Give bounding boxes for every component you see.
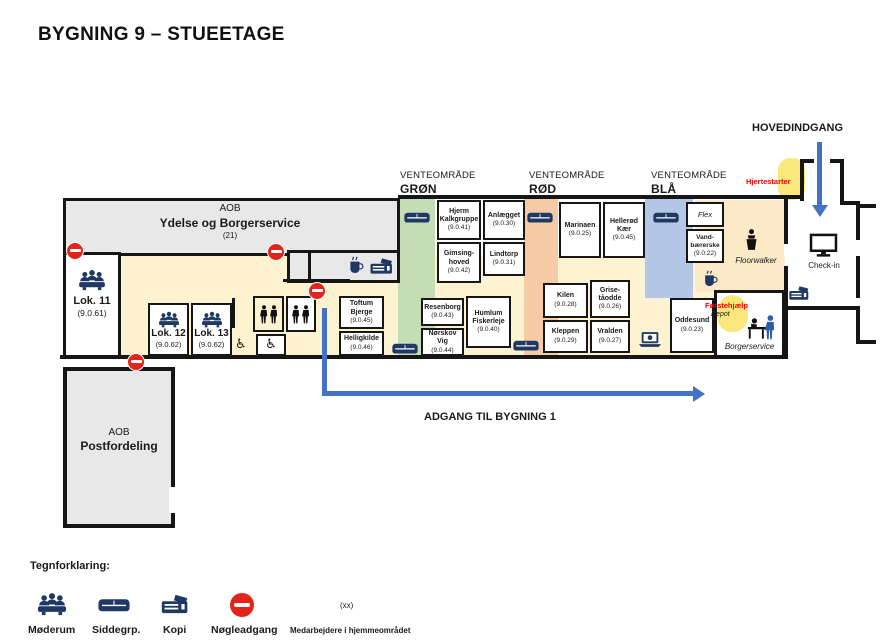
room-code: (9.0.45) xyxy=(613,234,635,242)
room-code: (9.0.29) xyxy=(554,337,576,345)
room-name: Lok. 12 xyxy=(151,328,185,340)
room-code: (9.0.61) xyxy=(77,308,106,318)
room-kilen: Kilen (9.0.28) xyxy=(543,283,588,318)
no-entry-icon xyxy=(229,592,255,618)
room-code: (9.0.41) xyxy=(448,224,470,232)
sofa-icon xyxy=(513,339,539,352)
room-code: (9.0.40) xyxy=(477,326,499,334)
wall-entrance-left-stub xyxy=(800,159,814,163)
aob-name: Ydelse og Borgerservice xyxy=(130,216,330,231)
room-name: Oddesund xyxy=(675,317,710,325)
room-gimsinghoved: Gimsing-hoved (9.0.42) xyxy=(437,242,481,283)
legend-item-kopi: Kopi xyxy=(163,624,186,636)
room-name: Lok. 11 xyxy=(73,295,110,308)
room-toftum-bjerge: Toftum Bjerge (9.0.45) xyxy=(339,296,384,329)
no-entry-icon xyxy=(308,282,326,300)
room-name: Kleppen xyxy=(552,328,580,336)
person-icon xyxy=(292,305,300,324)
wall-alcove-divider xyxy=(308,252,311,282)
room-code: (9.0.31) xyxy=(493,259,515,267)
room-noerskov-vig: Nørskov Vig (9.0.44) xyxy=(421,328,464,356)
legend-item-moederum: Møderum xyxy=(28,624,75,636)
room-name: Vand-bærerske xyxy=(689,234,721,250)
room-helleroed-kaer: Hellerød Kær (9.0.45) xyxy=(603,202,645,258)
meeting-icon xyxy=(200,311,224,328)
room-code: (9.0.43) xyxy=(431,312,453,320)
wall-right-bottom-stub xyxy=(856,340,876,344)
coffee-icon xyxy=(347,256,365,275)
waiting-area-green-label: VENTEOMRÅDE GRØN xyxy=(400,170,476,197)
room-lok-11: Lok. 11 (9.0.61) xyxy=(63,252,121,358)
room-name: Kilen xyxy=(557,292,574,300)
wheelchair-icon: ♿ xyxy=(235,337,247,352)
wc-persons-icon xyxy=(260,305,278,324)
person-icon xyxy=(302,305,310,324)
copier-icon xyxy=(369,256,395,276)
coffee-icon xyxy=(702,270,719,288)
room-hjerm-kalkgruppe: Hjerm Kalkgruppe (9.0.41) xyxy=(437,200,481,240)
defibrillator-label: Hjertestarter xyxy=(746,177,791,186)
depot-label: Depot xyxy=(711,311,730,318)
wall-checkin-bottom xyxy=(788,306,860,310)
sofa-icon xyxy=(98,597,130,613)
checkin-label: Check-in xyxy=(804,261,844,270)
wall-entrance-right-v xyxy=(840,159,844,201)
room-name: Anlægget xyxy=(488,212,520,220)
room-code: (9.0.62) xyxy=(156,340,182,349)
room-code: (9.0.23) xyxy=(681,326,703,334)
waiting-area-red-label: VENTEOMRÅDE RØD xyxy=(529,170,605,197)
legend-item-noegleadgang: Nøgleadgang xyxy=(211,624,278,636)
room-name: Helligkilde xyxy=(344,335,379,343)
floorwalker-lectern-icon xyxy=(744,228,759,251)
postfordeling-label: AOB Postfordeling xyxy=(68,426,170,455)
wall-entrance-right-stub xyxy=(830,159,844,163)
aob-org: AOB xyxy=(130,203,330,216)
wall-entrance-left-v xyxy=(800,159,804,201)
room-code: (9.0.27) xyxy=(599,337,621,345)
wall-right-c xyxy=(856,310,860,344)
wall-right-of-floorwalker-lower xyxy=(784,266,788,359)
room-name: Gimsing-hoved xyxy=(440,250,478,267)
no-entry-icon xyxy=(267,243,285,261)
checkin-monitor-icon xyxy=(809,233,838,257)
restroom-1 xyxy=(253,296,284,332)
room-code: (9.0.44) xyxy=(431,347,453,355)
aob-count: (21) xyxy=(130,231,330,241)
person-icon xyxy=(270,305,278,324)
laptop-icon xyxy=(638,331,662,348)
room-name: Toftum Bjerge xyxy=(342,300,381,317)
room-code: (9.0.25) xyxy=(569,230,591,238)
floorplan-canvas: BYGNING 9 – STUEETAGE AOB Ydelse og Borg… xyxy=(0,0,896,643)
room-anlaegget: Anlægget (9.0.30) xyxy=(483,200,525,240)
room-name: Grise-tåodde xyxy=(593,287,627,304)
room-name: Lok. 13 xyxy=(194,328,228,340)
postfordeling-door-gap xyxy=(169,487,177,513)
room-code: (9.0.62) xyxy=(199,340,225,349)
room-lok-12: Lok. 12 (9.0.62) xyxy=(148,303,189,356)
room-kleppen: Kleppen (9.0.29) xyxy=(543,320,588,353)
room-code: (9.0.28) xyxy=(554,301,576,309)
room-lindtorp: Lindtorp (9.0.31) xyxy=(483,242,525,276)
sofa-icon xyxy=(404,211,430,224)
post-org: AOB xyxy=(68,426,170,439)
person-icon xyxy=(260,305,268,324)
room-marinaen: Marinaen (9.0.25) xyxy=(559,202,601,258)
room-helligkilde: Helligkilde (9.0.46) xyxy=(339,331,384,356)
room-humlum-fiskerleje: Humlum Fiskerleje (9.0.40) xyxy=(466,296,511,348)
no-entry-icon xyxy=(66,242,84,260)
post-name: Postfordeling xyxy=(68,439,170,455)
waiting-area-blue-label: VENTEOMRÅDE BLÅ xyxy=(651,170,727,197)
no-entry-icon xyxy=(127,353,145,371)
room-code: (9.0.42) xyxy=(448,267,470,275)
legend-staff-label: Medarbejdere i hjemmeområdet xyxy=(290,626,410,635)
service-desk-icon xyxy=(746,314,776,340)
adgang-label: ADGANG TIL BYGNING 1 xyxy=(424,411,556,423)
floorwalker-label: Floorwalker xyxy=(728,256,784,265)
copier-icon xyxy=(788,284,811,302)
room-name: Vralden xyxy=(597,328,622,336)
room-code: (9.0.22) xyxy=(694,250,716,258)
sofa-icon xyxy=(527,211,553,224)
accessible-restroom: ♿ xyxy=(256,334,286,356)
meeting-icon xyxy=(157,311,181,328)
room-name: Hjerm Kalkgruppe xyxy=(440,208,479,225)
room-grisetaaodde: Grise-tåodde (9.0.26) xyxy=(590,280,630,318)
sofa-icon xyxy=(392,342,418,355)
adgang-arrow-horizontal xyxy=(322,391,694,396)
room-name: Lindtorp xyxy=(490,251,518,259)
wall-right-b xyxy=(856,256,860,298)
room-name: Resenborg xyxy=(424,304,461,312)
room-resenborg: Resenborg (9.0.43) xyxy=(421,298,464,326)
wheelchair-icon: ♿ xyxy=(265,337,277,353)
adgang-arrow-head xyxy=(693,386,705,402)
meeting-icon xyxy=(36,592,68,616)
wall-restroom-left xyxy=(232,298,235,328)
room-lok-13: Lok. 13 (9.0.62) xyxy=(191,303,232,356)
adgang-arrow-vertical xyxy=(322,308,327,396)
sofa-icon xyxy=(653,211,679,224)
legend-heading: Tegnforklaring: xyxy=(30,560,110,572)
restroom-2 xyxy=(286,296,316,332)
room-name: Hellerød Kær xyxy=(606,218,642,235)
entrance-arrow-shaft xyxy=(817,142,822,206)
room-code: (9.0.26) xyxy=(599,303,621,311)
room-vralden: Vralden (9.0.27) xyxy=(590,320,630,353)
wall-right-a xyxy=(856,204,860,240)
legend-staff-symbol: (xx) xyxy=(340,601,353,610)
room-code: (9.0.46) xyxy=(350,344,372,352)
wc-persons-icon xyxy=(292,305,310,324)
room-name: Flex xyxy=(698,210,712,219)
room-vandbaererske: Vand-bærerske (9.0.22) xyxy=(686,229,724,263)
copier-icon xyxy=(160,592,191,616)
room-name: Nørskov Vig xyxy=(424,330,461,347)
wall-bottom xyxy=(60,355,788,359)
room-name: Marinaen xyxy=(565,222,596,230)
room-name: Humlum Fiskerleje xyxy=(469,310,508,327)
wall-right-of-floorwalker-upper xyxy=(784,196,788,244)
room-code: (9.0.45) xyxy=(350,317,372,325)
room-code: (9.0.30) xyxy=(493,220,515,228)
aob-ydelse-label: AOB Ydelse og Borgerservice (21) xyxy=(130,203,330,241)
meeting-icon xyxy=(77,269,107,291)
main-entrance-label: HOVEDINDGANG xyxy=(752,122,843,134)
room-flex: Flex xyxy=(686,202,724,227)
legend-item-siddegrp: Siddegrp. xyxy=(92,624,140,636)
entrance-arrow-head xyxy=(812,205,828,217)
first-aid-label: Førstehjælp xyxy=(705,301,748,310)
wall-right-top-stub xyxy=(856,204,876,208)
page-title: BYGNING 9 – STUEETAGE xyxy=(38,24,285,46)
borgerservice-label: Borgerservice xyxy=(725,342,774,352)
